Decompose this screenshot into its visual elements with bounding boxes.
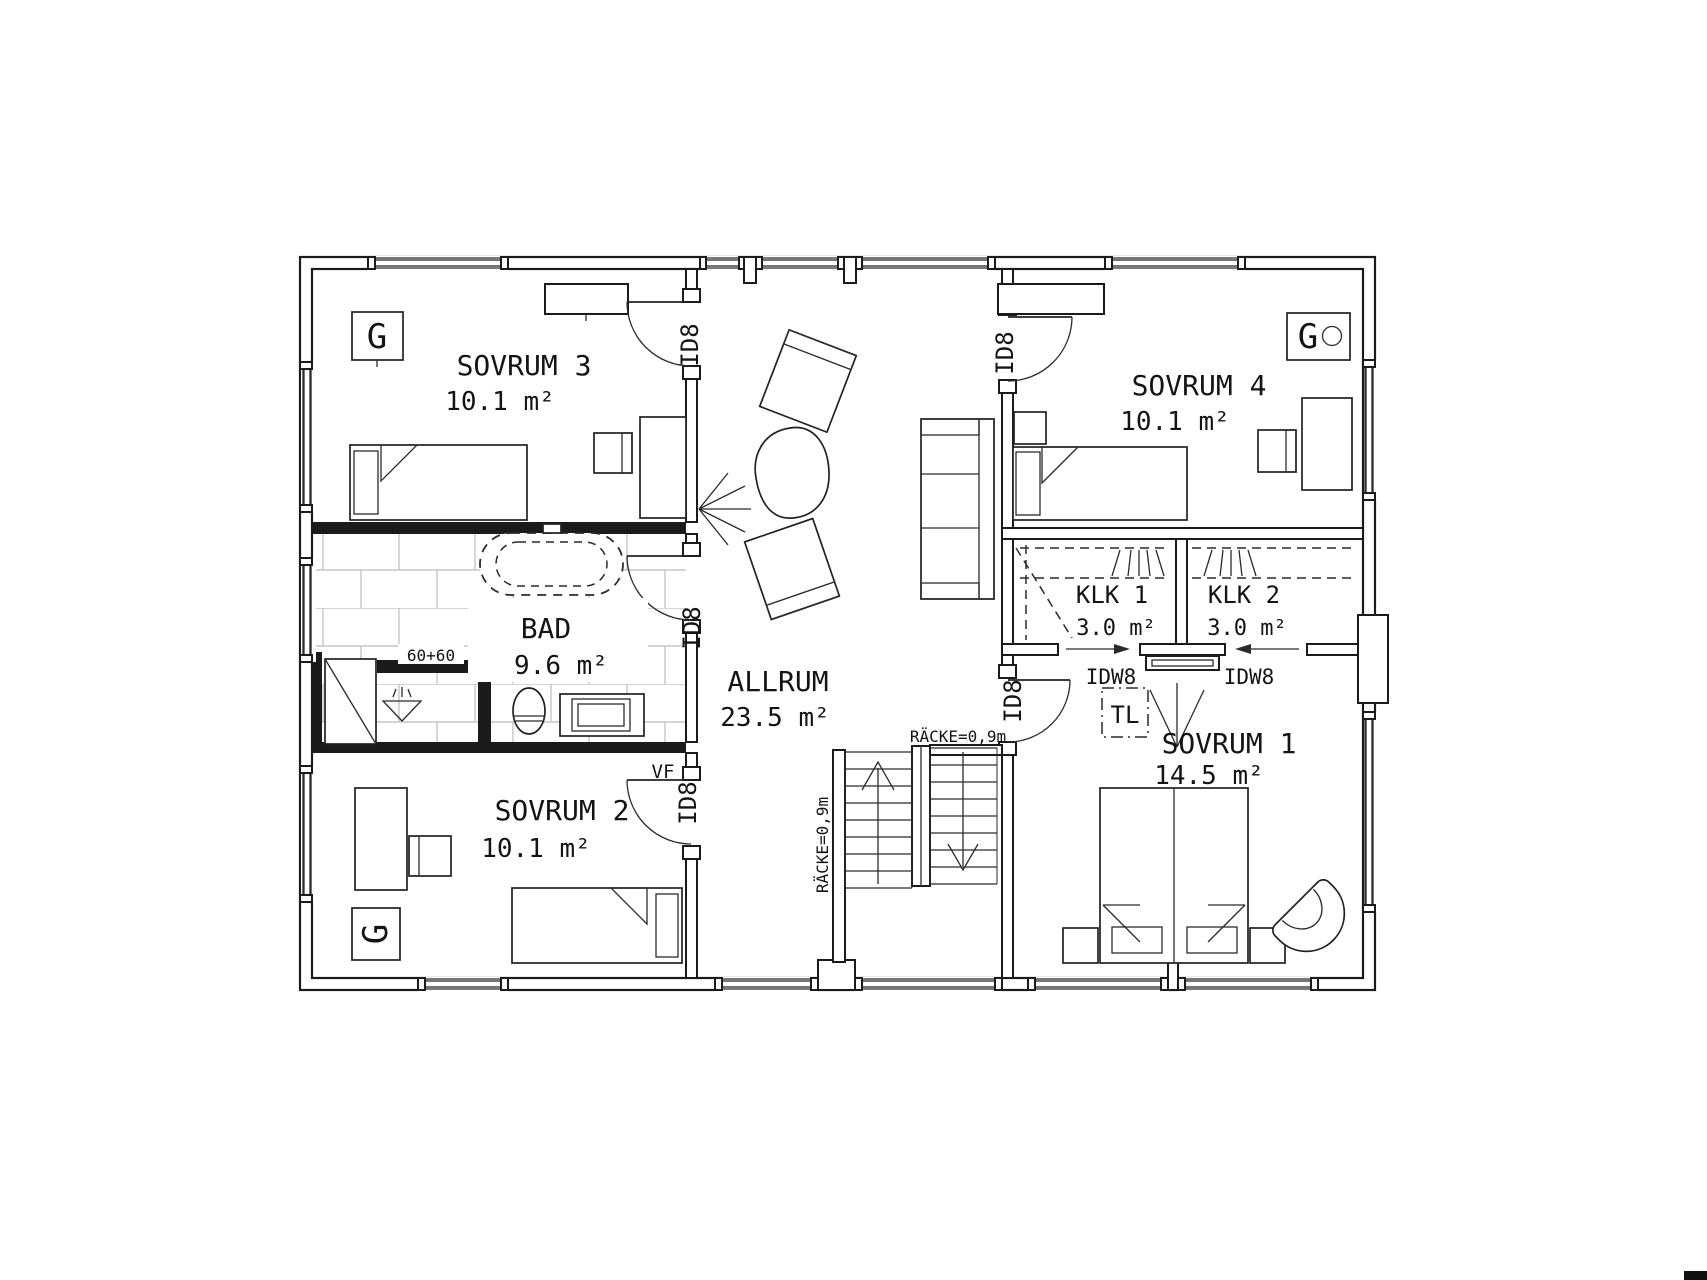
- armchair: [760, 330, 857, 432]
- area-label-sovrum4: 10.1 m²: [1120, 407, 1230, 437]
- window-symbol: [715, 977, 818, 992]
- stair-up-arrow: [862, 762, 894, 884]
- door-label-idw8: IDW8: [1224, 665, 1275, 689]
- furniture-sovrum1: [1063, 683, 1360, 967]
- desk-chair: [594, 433, 632, 473]
- door-label-id8: ID8: [676, 323, 704, 366]
- door-label-idw8: IDW8: [1086, 665, 1137, 689]
- wardrobe-label: G: [367, 317, 387, 357]
- window-symbol: [1363, 360, 1379, 500]
- bed-single: [1013, 447, 1187, 520]
- desk: [640, 417, 686, 518]
- wardrobe-box: [1287, 313, 1350, 360]
- area-label-klk1: 3.0 m²: [1076, 616, 1155, 641]
- window-symbol: [755, 256, 845, 271]
- window-symbol: [368, 256, 508, 271]
- railing-label: RÄCKE=0,9m: [910, 727, 1006, 746]
- wall-pier: [1168, 962, 1178, 990]
- scan-artifact: [1684, 1271, 1707, 1280]
- room-label-sovrum2: SOVRUM 2: [495, 794, 630, 827]
- window-symbol: [300, 362, 316, 512]
- floor-plan: SOVRUM 3 10.1 m² BAD 9.6 m² SOVRUM 2 10.…: [0, 0, 1707, 1280]
- room-label-klk1: KLK 1: [1076, 581, 1148, 609]
- window-symbol: [855, 256, 995, 271]
- door-label-id8: ID8: [999, 679, 1027, 722]
- door-label-id8: ID8: [991, 331, 1019, 374]
- stair-down-arrow: [948, 752, 978, 870]
- desk-chair: [409, 836, 451, 876]
- wall-pier: [818, 960, 855, 990]
- wall-lamp-icon: [699, 473, 751, 545]
- sliding-door-panel: [1146, 656, 1219, 670]
- window-symbol: [1178, 977, 1318, 992]
- wall-sovrum3-bad: [312, 522, 686, 534]
- furniture-allrum: [699, 330, 994, 620]
- toilet: [513, 688, 545, 734]
- wardrobe-label: G: [1298, 317, 1318, 357]
- area-label-sovrum3: 10.1 m²: [445, 387, 555, 417]
- window-symbol: [1363, 712, 1379, 912]
- window-symbol: [700, 256, 745, 271]
- area-label-sovrum2: 10.1 m²: [481, 834, 591, 864]
- vanity-sink: [560, 694, 644, 736]
- bed-single: [512, 888, 682, 963]
- window-symbol: [1105, 256, 1245, 271]
- room-label-bad: BAD: [521, 612, 572, 645]
- room-label-sovrum3: SOVRUM 3: [457, 349, 592, 382]
- desk: [355, 788, 407, 890]
- hanger-rail-klk2: [1192, 548, 1355, 578]
- door-label-id8: ID8: [678, 606, 706, 649]
- vf-label: VF: [652, 761, 675, 783]
- area-label-sovrum1: 14.5 m²: [1154, 761, 1264, 791]
- bed-single: [350, 445, 527, 520]
- window-symbol: [855, 977, 1002, 992]
- room-label-klk2: KLK 2: [1208, 581, 1280, 609]
- room-label-sovrum4: SOVRUM 4: [1132, 369, 1267, 402]
- bathtub: [480, 524, 623, 595]
- area-label-bad: 9.6 m²: [514, 651, 608, 681]
- bathtub-tap: [543, 524, 561, 533]
- stair-railing-left: [833, 750, 845, 962]
- nightstand: [1014, 412, 1046, 444]
- stair-railing-top: [930, 745, 1002, 755]
- railing-label: RÄCKE=0,9m: [813, 797, 832, 893]
- shower-size-label: 60+60: [407, 646, 455, 665]
- window-symbol: [300, 766, 316, 902]
- hatch-label: TL: [1111, 701, 1140, 729]
- area-label-allrum: 23.5 m²: [720, 703, 830, 733]
- wall-sovrum4-klk: [1002, 528, 1363, 539]
- window-symbol: [1028, 977, 1168, 992]
- staircase: [833, 745, 1002, 962]
- area-label-klk2: 3.0 m²: [1207, 616, 1286, 641]
- window-symbol: [300, 558, 316, 662]
- rug-organic: [755, 428, 829, 519]
- bathroom-cabinet: [325, 659, 376, 744]
- desk: [1302, 398, 1352, 490]
- armchair: [745, 519, 840, 620]
- sofa: [921, 419, 994, 599]
- bed-double: [1100, 788, 1248, 963]
- room-label-sovrum1: SOVRUM 1: [1162, 727, 1297, 760]
- wall-pier: [744, 257, 756, 283]
- wall-klk-divider: [1176, 539, 1187, 644]
- room-label-allrum: ALLRUM: [727, 665, 828, 698]
- door-label-id8: ID8: [674, 781, 702, 824]
- wardrobe-label: G: [356, 924, 396, 944]
- nightstand: [1063, 928, 1098, 963]
- wall-pier: [844, 257, 856, 283]
- window-symbol: [418, 977, 508, 992]
- desk-chair: [1258, 430, 1296, 472]
